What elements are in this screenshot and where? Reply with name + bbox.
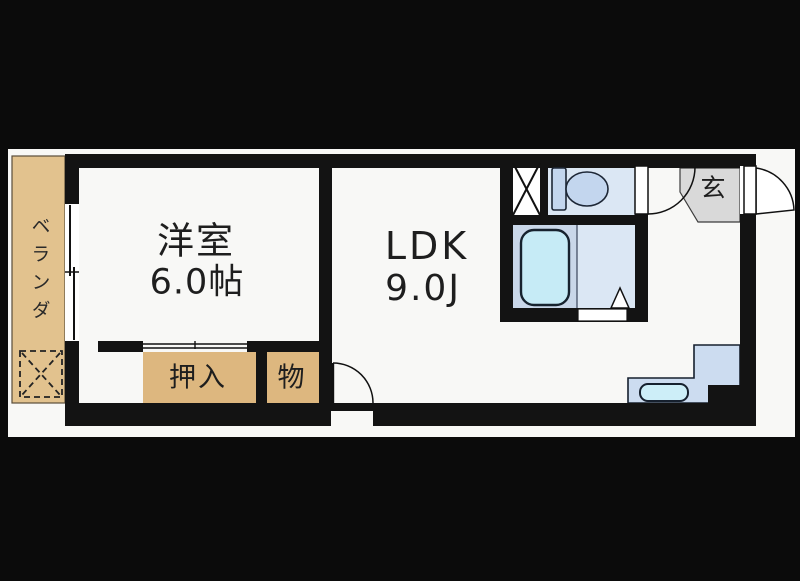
wall-segment [373, 403, 756, 426]
oshiire-label: 押入 [169, 365, 227, 392]
genkan-label: 玄 [700, 176, 725, 201]
ldk-size-label: 9.0J [385, 271, 461, 307]
wall-segment [331, 403, 373, 411]
wall-segment [500, 154, 513, 322]
bathroom-area [577, 225, 635, 308]
wall-segment [98, 341, 143, 352]
kitchen-sink-icon [640, 384, 688, 401]
wall-segment [500, 215, 648, 225]
west-room-size-label: 6.0帖 [150, 266, 245, 301]
ldk-name-label: LDK [385, 227, 469, 265]
room-door-icon [333, 363, 373, 403]
floor-plan-canvas: ベランダ 洋室 6.0帖 LDK 9.0J 押入 物 玄 [0, 0, 800, 581]
wall-pillar [708, 385, 740, 403]
balcony-window-icon [65, 204, 79, 341]
bath-door-icon [578, 309, 627, 321]
mono-label: 物 [278, 365, 307, 392]
wall-segment [540, 163, 548, 215]
wall-segment [65, 341, 79, 403]
wall-segment [319, 154, 332, 403]
wall-segment [65, 403, 331, 426]
wall-segment [256, 352, 267, 403]
balcony-label: ベランダ [30, 216, 49, 328]
west-room-name-label: 洋室 [157, 223, 235, 260]
entrance-door-icon [740, 166, 794, 214]
bathtub-icon [521, 230, 569, 305]
wall-segment [247, 341, 319, 352]
wall-segment [65, 154, 756, 168]
wall-segment [65, 154, 79, 204]
closet-sliding-door-icon [143, 341, 247, 349]
